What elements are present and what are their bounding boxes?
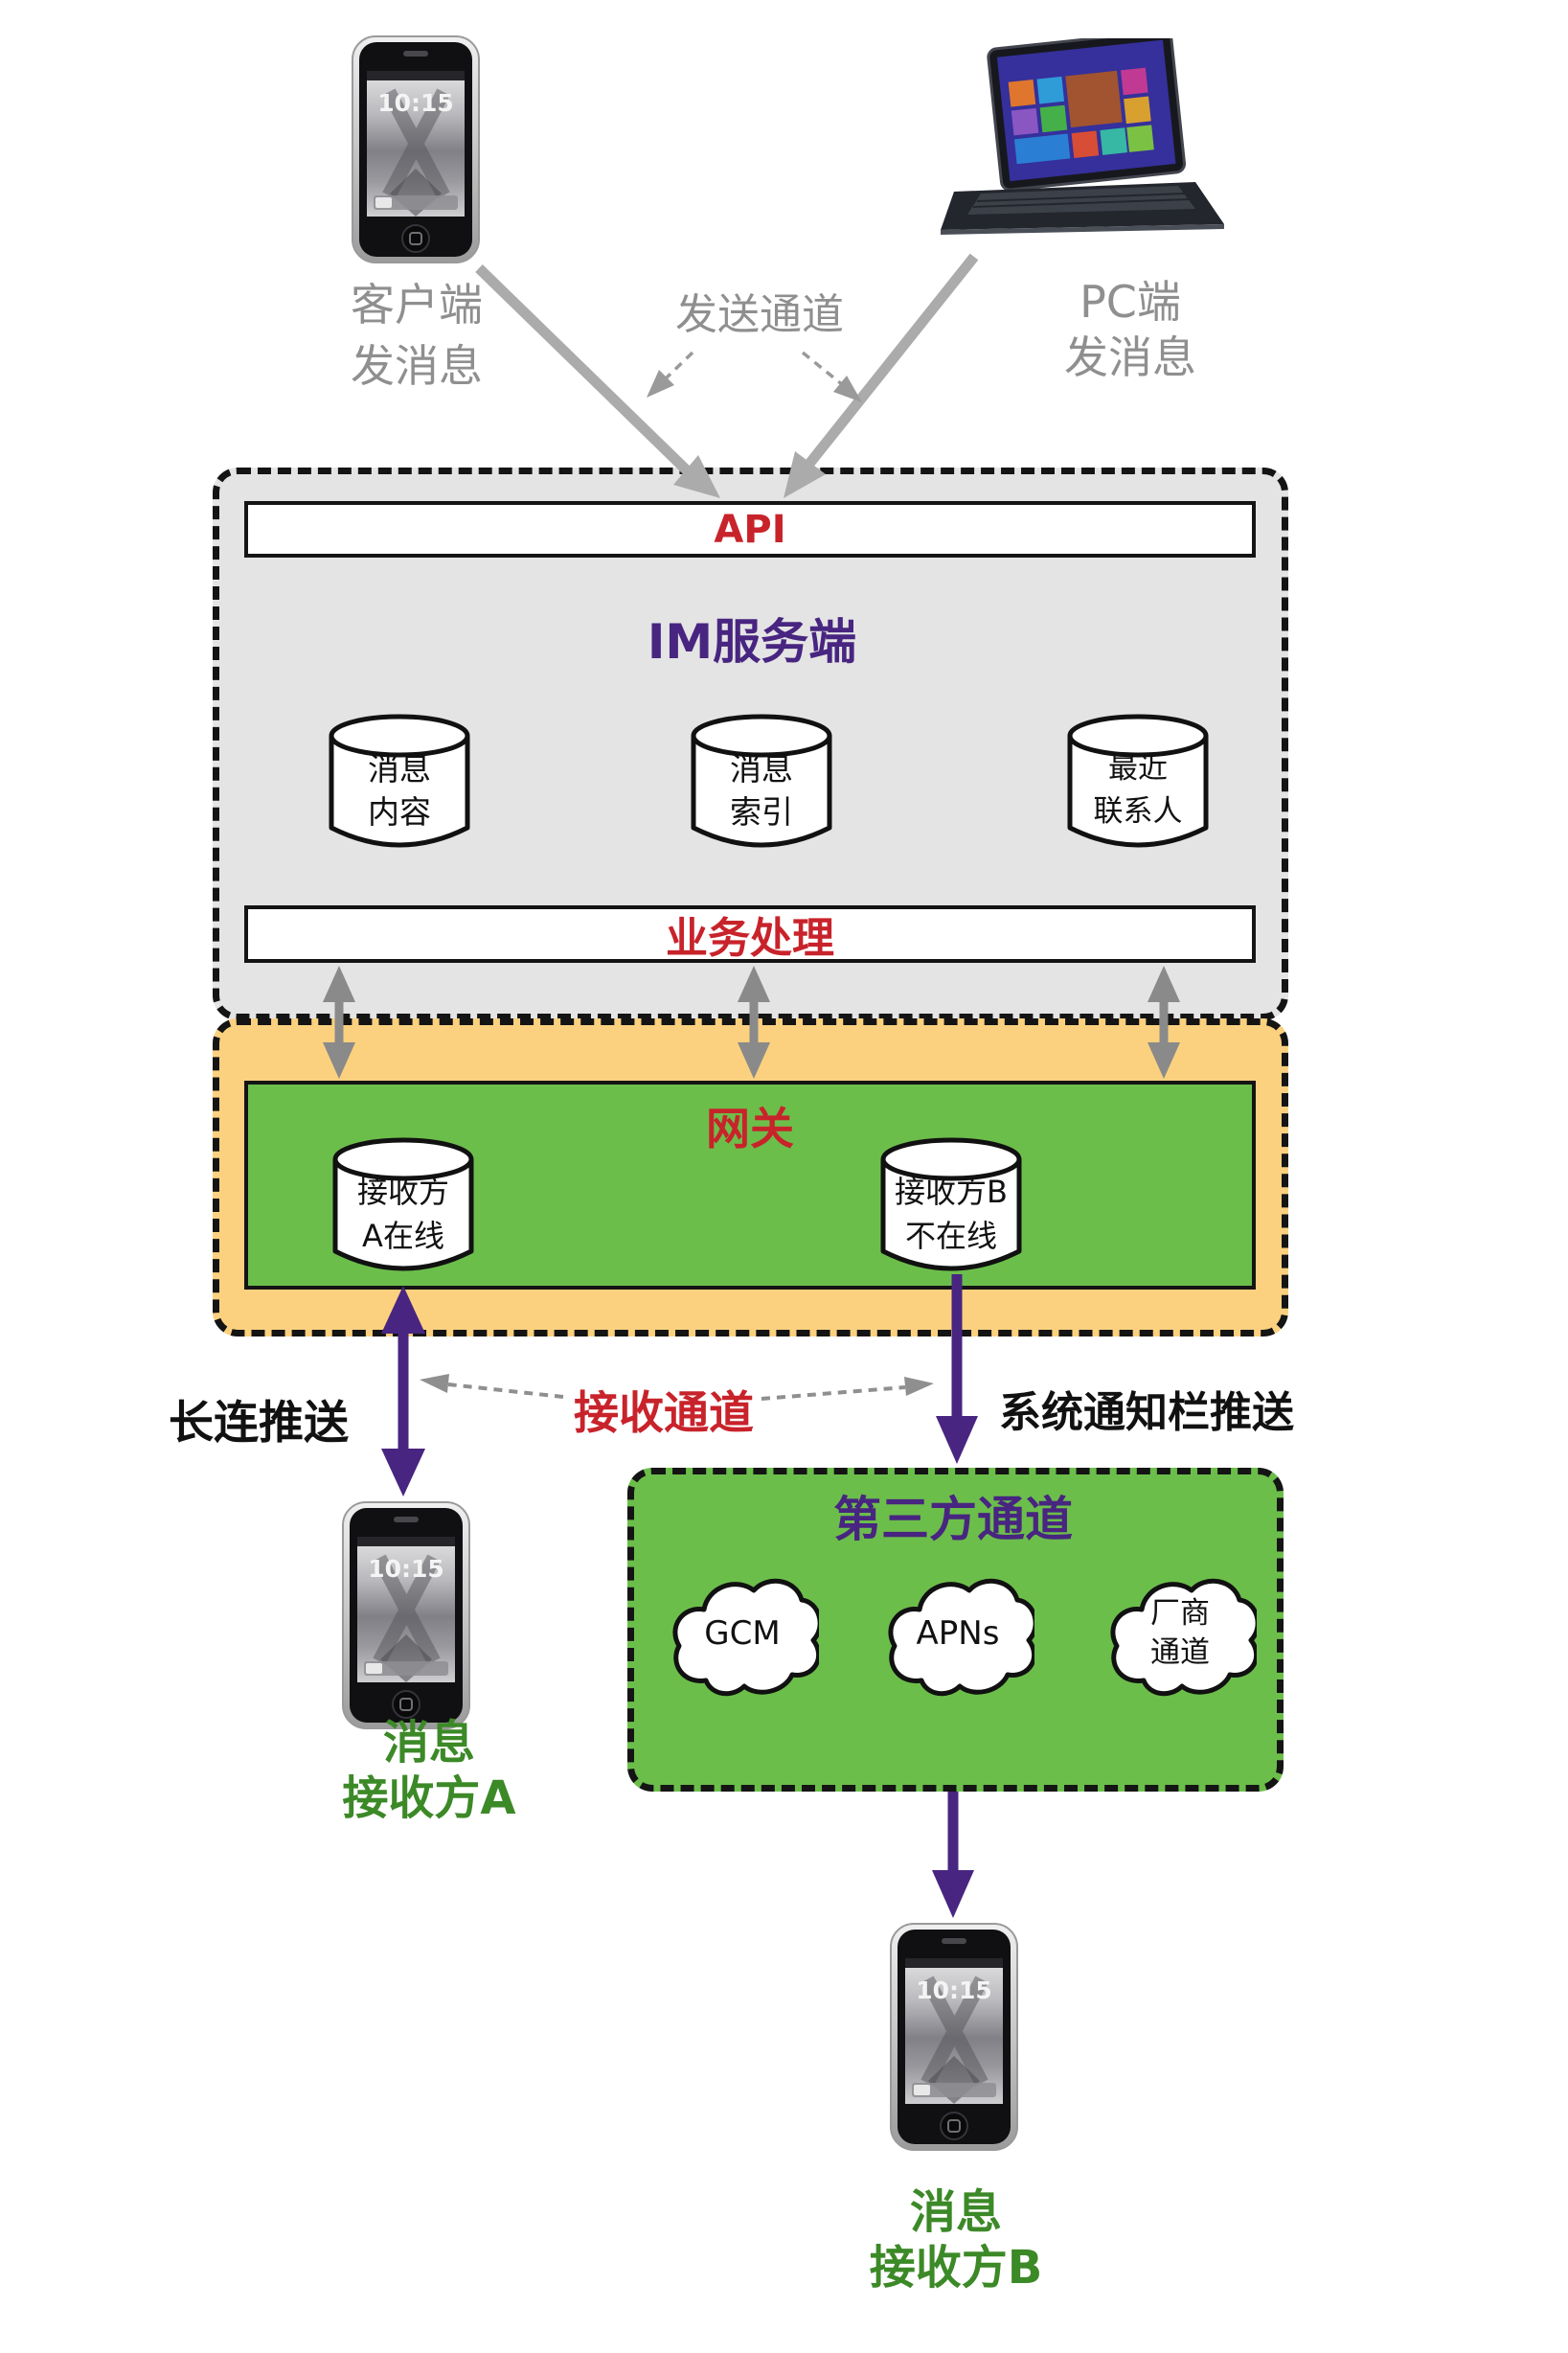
send-channel-pointer-left — [647, 353, 693, 398]
receiver-b-phone-image — [889, 1922, 1019, 2152]
gateway-node-receiver-a-online: 接收方 A在线 — [331, 1136, 475, 1280]
receive-channel-pointer-left — [420, 1374, 563, 1397]
cloud-vendor-channel: 厂商 通道 — [1103, 1564, 1257, 1702]
gateway-node-receiver-b-offline: 接收方B 不在线 — [879, 1136, 1023, 1280]
db-message-content: 消息 内容 — [328, 713, 471, 857]
mobile-sender-label-line1: 客户端 — [307, 274, 527, 335]
receive-channel-pointer-right — [761, 1377, 934, 1399]
long-connection-push-label: 长连推送 — [144, 1385, 374, 1451]
receive-channel-label: 接收通道 — [554, 1376, 774, 1442]
third-party-channel-title: 第三方通道 — [742, 1481, 1164, 1550]
im-server-title: IM服务端 — [532, 604, 972, 673]
cloud-apns: APNs — [881, 1564, 1034, 1702]
pc-sender-label-line2: 发消息 — [1020, 330, 1240, 385]
cloud-gcm: GCM — [666, 1564, 819, 1702]
receiver-b-label: 消息 接收方B — [831, 2184, 1080, 2296]
send-channel-label: 发送通道 — [640, 280, 879, 341]
api-label: API — [714, 508, 785, 552]
third-party-to-receiver-b-arrow — [932, 1792, 974, 1918]
db-recent-contacts: 最近 联系人 — [1066, 713, 1210, 857]
business-processing-label: 业务处理 — [666, 903, 834, 965]
receiver-a-phone-image — [341, 1500, 471, 1730]
api-bar: API — [244, 501, 1256, 558]
pc-sender-label: PC端 发消息 — [1020, 274, 1240, 385]
receiver-a-label: 消息 接收方A — [305, 1715, 554, 1826]
db-message-index: 消息 索引 — [690, 713, 833, 857]
system-notification-push-label: 系统通知栏推送 — [969, 1378, 1324, 1439]
business-processing-bar: 业务处理 — [244, 905, 1256, 963]
mobile-sender-phone-image — [351, 34, 481, 264]
pc-laptop-image — [939, 38, 1226, 254]
send-channel-pointer-right — [803, 353, 862, 402]
mobile-sender-label-line2: 发消息 — [307, 335, 527, 397]
mobile-sender-label: 客户端 发消息 — [307, 274, 527, 397]
pc-sender-label-line1: PC端 — [1020, 274, 1240, 330]
im-architecture-diagram: 10:15 — [0, 0, 1568, 2353]
